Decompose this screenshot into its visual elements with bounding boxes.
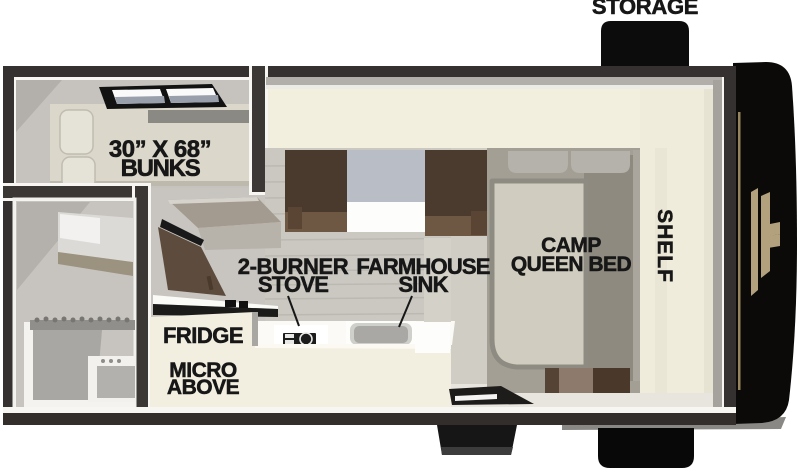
svg-text:STORAGE: STORAGE [592,0,698,19]
svg-text:SINK: SINK [398,272,448,297]
svg-text:QUEEN BED: QUEEN BED [511,253,632,276]
svg-text:ABOVE: ABOVE [167,376,240,399]
svg-text:SHELF: SHELF [653,209,676,283]
svg-text:STOVE: STOVE [258,272,328,297]
svg-text:FRIDGE: FRIDGE [163,323,243,348]
svg-text:BUNKS: BUNKS [121,155,201,182]
